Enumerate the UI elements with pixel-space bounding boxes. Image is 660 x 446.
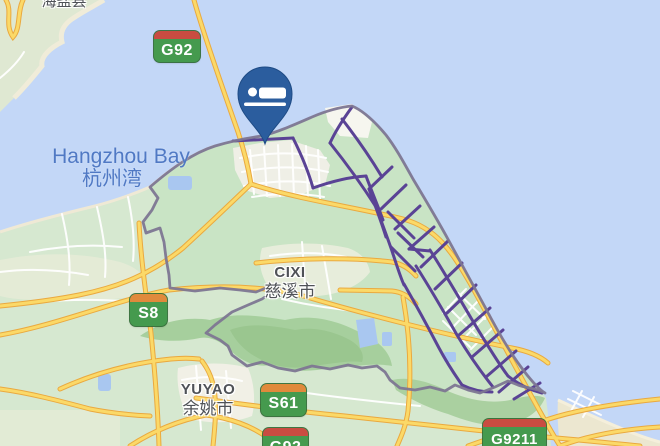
route-badge-g92-bottom: G92 xyxy=(263,428,308,446)
route-badge-g92-top: G92 xyxy=(154,31,200,62)
route-badge-s8-code: S8 xyxy=(130,302,167,326)
route-badge-g92-top-code: G92 xyxy=(154,39,200,62)
route-badge-g9211-code: G9211 xyxy=(483,427,546,446)
label-cixi-zh: 慈溪市 xyxy=(265,283,316,300)
map-canvas[interactable]: 海盐县 Hangzhou Bay 杭州湾 CIXI 慈溪市 YUYAO 余姚市 … xyxy=(0,0,660,446)
badge-orange-strip xyxy=(261,384,306,392)
badge-red-strip xyxy=(483,419,546,427)
label-hangzhou-bay-en: Hangzhou Bay xyxy=(52,146,190,167)
badge-red-strip xyxy=(154,31,200,39)
lodging-marker[interactable] xyxy=(228,64,302,150)
label-yuyao-en: YUYAO xyxy=(181,382,235,397)
map-base-layer xyxy=(0,0,660,446)
route-badge-s61: S61 xyxy=(261,384,306,416)
label-hangzhou-bay-zh: 杭州湾 xyxy=(82,169,142,189)
label-haiyan-county: 海盐县 xyxy=(41,0,86,9)
badge-orange-strip xyxy=(130,294,167,302)
route-badge-s61-code: S61 xyxy=(261,392,306,416)
route-badge-s8: S8 xyxy=(130,294,167,326)
label-cixi-en: CIXI xyxy=(274,265,305,280)
badge-red-strip xyxy=(263,428,308,436)
label-yuyao-zh: 余姚市 xyxy=(183,400,234,417)
route-badge-g9211: G9211 xyxy=(483,419,546,446)
route-badge-g92-bottom-code: G92 xyxy=(263,436,308,446)
